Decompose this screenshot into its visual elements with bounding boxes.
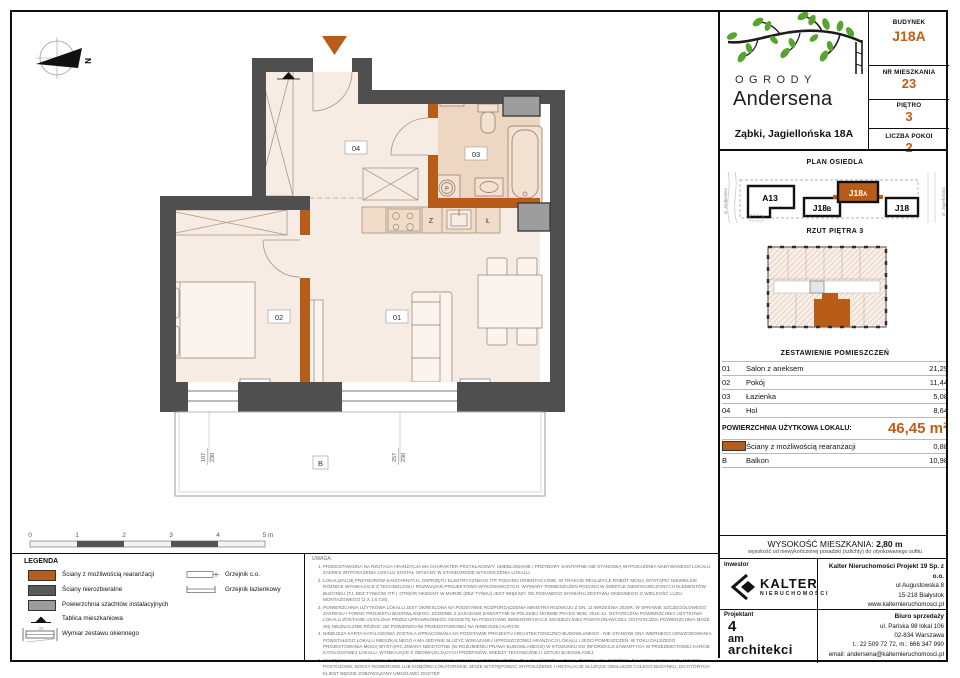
- legend-item: Tablica mieszkaniowa: [62, 615, 123, 622]
- building-a13: A13: [748, 186, 794, 221]
- window-dim-legend-icon: 101: [22, 626, 58, 644]
- project-address: Ząbki, Jagiellońska 18A: [720, 117, 868, 150]
- note-item: LOKALIZACJĘ PRZYBORÓW SANITARNYCH, OSPRZ…: [323, 578, 712, 604]
- room-04-label: 04: [352, 144, 360, 153]
- fridge-label: Ł: [486, 218, 490, 225]
- room-03-label: 03: [472, 150, 480, 159]
- svg-text:5 m: 5 m: [263, 532, 274, 539]
- info-label-budynek: BUDYNEK: [869, 19, 949, 26]
- note-item: PRZEDSTAWIONA NA RZUTACH ARANŻACJA MA CH…: [323, 564, 712, 577]
- legend-item: Ściany z możliwością rearanżacji: [62, 571, 154, 578]
- svg-text:2: 2: [122, 532, 126, 539]
- svg-text:A13: A13: [762, 193, 778, 203]
- north-label: N: [83, 58, 92, 64]
- balcony-row: B Balkon 10,98: [722, 454, 948, 468]
- legend-title: LEGENDA: [24, 558, 58, 565]
- legend-item: Grzejnik c.o.: [225, 571, 260, 578]
- site-plan-map: A13 J18B J18A J18 ul. Andersena ul. Jagi…: [720, 170, 950, 225]
- radiator-co-icon: [186, 570, 220, 579]
- divider: [304, 553, 305, 662]
- window-right: [342, 382, 457, 412]
- total-area-row: POWIERZCHNIA UŻYTKOWA LOKALU: 46,45 m²: [722, 418, 948, 440]
- chair: [517, 258, 537, 275]
- table-row: 01 Salon z aneksem 21,29: [722, 361, 948, 376]
- note-item: POWIERZCHNIA UŻYTKOWA LOKALU JEST OKREŚL…: [323, 605, 712, 631]
- floor-overview-map: [766, 245, 888, 331]
- note-item: W CZĘŚCIACH WSPÓLNYCH BUDYNKU, PRZEWIDYW…: [323, 658, 712, 677]
- legend-swatch-gray: [28, 600, 56, 611]
- legend-swatch-dark: [28, 585, 56, 596]
- svg-text:4: 4: [216, 532, 220, 539]
- kitchen-sink: [447, 209, 471, 229]
- notes-title: UWAGA:: [312, 556, 712, 562]
- legend-item: Grzejnik łazienkowy: [225, 586, 281, 593]
- balcony: [175, 412, 545, 496]
- scale-bar: 0 1 2 3 4 5 m: [28, 532, 273, 547]
- svg-text:101: 101: [38, 627, 44, 631]
- toilet-tank: [478, 104, 498, 112]
- note-item: NINIEJSZA KARTA KATALOGOWA ZOSTAŁA OPRAC…: [323, 631, 712, 657]
- unit-info-table: BUDYNEK J18A NR MIESZKANIA 23 PIĘTRO 3 L…: [868, 10, 949, 150]
- tablica-legend-icon: [30, 615, 52, 624]
- height-value: 2,80 m: [876, 539, 902, 549]
- info-value-budynek: J18A: [869, 29, 949, 43]
- total-area-value: 46,45 m²: [888, 420, 948, 437]
- dining-table: [478, 275, 542, 328]
- washer-label: P: [445, 187, 449, 193]
- info-label-mieszkanie: NR MIESZKANIA: [869, 69, 949, 76]
- chair: [517, 328, 537, 345]
- entrance-marker-icon: [322, 36, 347, 55]
- table-row: 04 Hol 8,64: [722, 404, 948, 418]
- balcony-label: B: [318, 459, 323, 468]
- room-01-label: 01: [393, 313, 401, 322]
- investor-label: Inwestor: [724, 562, 749, 568]
- floor-overview-title: RZUT PIĘTRA 3: [720, 228, 950, 235]
- building-j18a-highlighted: J18A: [838, 182, 878, 202]
- legend-item: Ściany nierozbieralne: [62, 586, 122, 593]
- info-value-mieszkanie: 23: [869, 77, 949, 90]
- sofa: [412, 292, 452, 392]
- logo-line1: OGRODY: [735, 74, 817, 86]
- rooms-table-title: ZESTAWIENIE POMIESZCZEŃ: [720, 350, 950, 357]
- designer-logo: 4 am architekci: [728, 620, 793, 656]
- svg-text:230: 230: [210, 453, 216, 462]
- table-row: 03 Łazienka 5,08: [722, 390, 948, 404]
- divider: [10, 553, 720, 554]
- logo-tree-graphic: [722, 12, 868, 76]
- svg-text:107: 107: [201, 453, 207, 462]
- svg-text:J18: J18: [895, 203, 909, 213]
- chair: [487, 258, 507, 275]
- notes-block: UWAGA: PRZEDSTAWIONA NA RZUTACH ARANŻACJ…: [312, 556, 712, 678]
- site-plan-title: PLAN OSIEDLA: [720, 159, 950, 166]
- radiator-bath-icon: [186, 585, 220, 594]
- info-label-pokoje: LICZBA POKOI: [869, 133, 949, 140]
- entrance-opening: [313, 58, 352, 72]
- toilet-bowl: [481, 112, 495, 133]
- svg-text:0: 0: [28, 532, 32, 539]
- room-02-label: 02: [275, 313, 283, 322]
- dishwasher-label: Z: [429, 218, 434, 225]
- orange-wall-swatch: [722, 441, 746, 451]
- north-arrow-icon: N: [36, 37, 92, 79]
- street-right-label: ul. Jagiellońska: [941, 187, 946, 216]
- kalter-wordmark: KALTER NIERUCHOMOŚCI: [760, 577, 829, 597]
- legend-swatch-orange: [28, 570, 56, 581]
- svg-text:1: 1: [75, 532, 79, 539]
- rooms-table: 01 Salon z aneksem 21,29 02 Pokój 11,44 …: [722, 361, 948, 468]
- height-note: wysokość od niewykończonej posadzki (szl…: [720, 549, 950, 555]
- floor-plan: N Z Ł: [10, 10, 720, 555]
- info-value-pietro: 3: [869, 110, 949, 123]
- info-label-pietro: PIĘTRO: [869, 102, 949, 109]
- svg-text:230: 230: [401, 453, 407, 462]
- street-left-label: ul. Andersena: [723, 188, 728, 214]
- divider: [720, 535, 948, 536]
- sales-office-contact: Biuro sprzedaży ul. Pańska 98 lokal 106 …: [822, 612, 944, 659]
- info-value-pokoje: 2: [869, 141, 949, 154]
- total-area-label: POWIERZCHNIA UŻYTKOWA LOKALU:: [722, 425, 888, 432]
- contact-grid: Inwestor KALTER NIERUCHOMOŚCI Kalter Nie…: [720, 558, 948, 663]
- building-j18: J18: [886, 198, 918, 216]
- window-left: [188, 382, 238, 412]
- divider: [720, 149, 948, 151]
- chair: [487, 328, 507, 345]
- apartment-card-page: N Z Ł: [0, 0, 960, 678]
- kalter-logo-icon: [726, 571, 756, 603]
- legend-item: Wymiar zestawu okiennego: [62, 630, 139, 637]
- walls-row: Ściany z możliwością rearanżacji 0,88: [722, 440, 948, 454]
- logo-line2: Andersena: [733, 88, 832, 111]
- investor-contact: Kalter Nieruchomości Projekt 19 Sp. z o.…: [822, 562, 944, 609]
- table-row: 02 Pokój 11,44: [722, 376, 948, 390]
- svg-text:257: 257: [392, 453, 398, 462]
- panel-divider: [718, 10, 720, 658]
- height-line: WYSOKOŚĆ MIESZKANIA: 2,80 m: [720, 539, 950, 549]
- building-j18b: J18B: [804, 198, 840, 216]
- legend-item: Powierzchnia szachtów instalacyjnych: [62, 601, 168, 608]
- washbasin: [475, 178, 503, 196]
- notes-list: PRZEDSTAWIONA NA RZUTACH ARANŻACJA MA CH…: [312, 564, 712, 678]
- svg-text:3: 3: [169, 532, 173, 539]
